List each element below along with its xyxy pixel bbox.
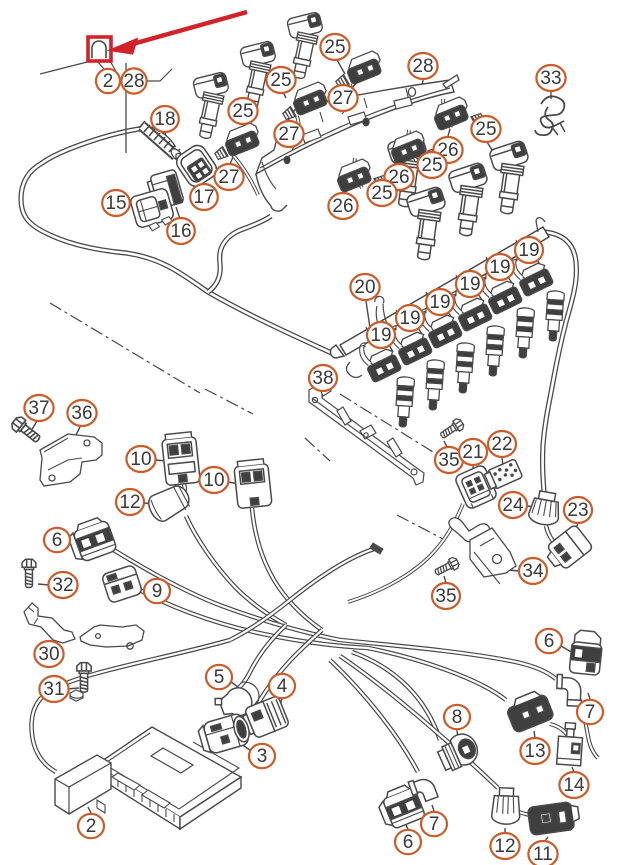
svg-text:8: 8 [452,707,463,728]
svg-text:24: 24 [502,495,524,516]
svg-text:28: 28 [412,56,433,77]
svg-text:21: 21 [462,442,483,463]
svg-text:27: 27 [332,88,353,109]
svg-text:19: 19 [399,308,420,329]
svg-text:5: 5 [214,667,225,688]
svg-text:3: 3 [257,746,268,767]
svg-text:22: 22 [491,434,512,455]
svg-text:23: 23 [567,500,588,521]
svg-text:2: 2 [86,816,97,837]
svg-text:35: 35 [435,586,456,607]
svg-text:18: 18 [154,109,175,130]
svg-text:9: 9 [152,581,163,602]
svg-text:15: 15 [105,193,126,214]
svg-text:32: 32 [52,575,73,596]
svg-text:12: 12 [494,836,515,857]
svg-text:6: 6 [403,832,414,853]
svg-text:38: 38 [312,368,333,389]
svg-text:4: 4 [277,676,288,697]
svg-text:10: 10 [130,449,151,470]
svg-text:25: 25 [324,37,345,58]
svg-text:2: 2 [103,71,114,92]
svg-text:31: 31 [43,679,64,700]
svg-text:30: 30 [38,644,59,665]
svg-text:6: 6 [544,631,555,652]
svg-text:26: 26 [332,196,353,217]
svg-text:35: 35 [438,450,459,471]
svg-text:25: 25 [270,70,291,91]
svg-text:36: 36 [71,403,92,424]
svg-text:19: 19 [370,325,391,346]
svg-text:13: 13 [524,741,545,762]
svg-text:33: 33 [540,68,561,89]
svg-text:10: 10 [203,470,224,491]
svg-text:37: 37 [28,398,49,419]
svg-text:34: 34 [522,561,544,582]
svg-text:27: 27 [278,124,299,145]
svg-text:27: 27 [218,167,239,188]
svg-text:14: 14 [563,775,585,796]
svg-text:19: 19 [429,292,450,313]
svg-text:12: 12 [119,492,140,513]
svg-text:11: 11 [533,844,553,865]
svg-text:17: 17 [193,187,214,208]
svg-text:19: 19 [459,274,480,295]
svg-text:19: 19 [489,257,510,278]
svg-text:25: 25 [475,119,496,140]
svg-text:16: 16 [170,221,191,242]
svg-text:7: 7 [585,702,596,723]
svg-text:7: 7 [429,814,440,835]
svg-text:25: 25 [421,155,442,176]
svg-text:28: 28 [123,71,144,92]
svg-text:19: 19 [518,240,539,261]
svg-text:20: 20 [354,277,375,298]
svg-text:25: 25 [232,101,253,122]
svg-text:25: 25 [371,183,392,204]
svg-text:6: 6 [52,530,63,551]
